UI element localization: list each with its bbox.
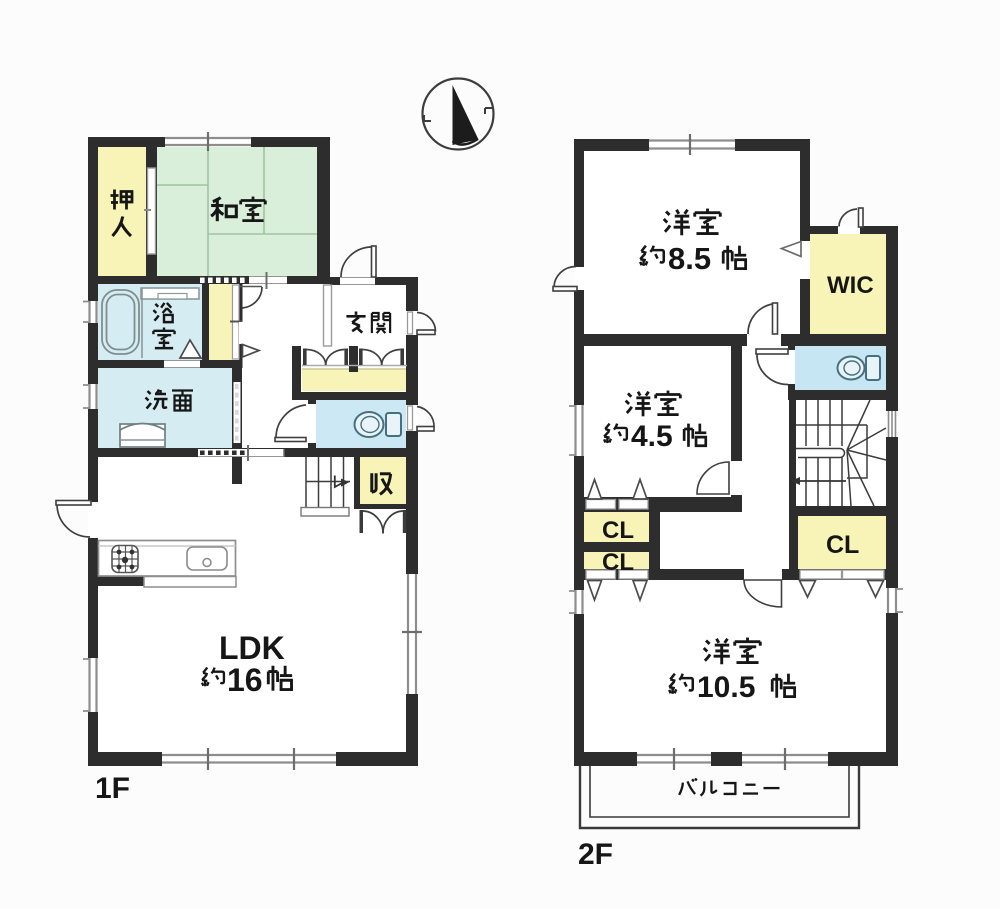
- svg-text:WIC: WIC: [827, 272, 874, 299]
- svg-text:8.5: 8.5: [668, 241, 711, 276]
- svg-text:16: 16: [227, 662, 263, 698]
- svg-text:CL: CL: [602, 517, 634, 544]
- svg-text:CL: CL: [602, 549, 634, 576]
- svg-text:1F: 1F: [95, 772, 130, 805]
- svg-text:2F: 2F: [578, 838, 613, 871]
- svg-text:4.5: 4.5: [631, 420, 673, 453]
- svg-text:CL: CL: [826, 531, 859, 559]
- svg-text:LDK: LDK: [219, 630, 285, 666]
- svg-text:10.5: 10.5: [697, 671, 755, 704]
